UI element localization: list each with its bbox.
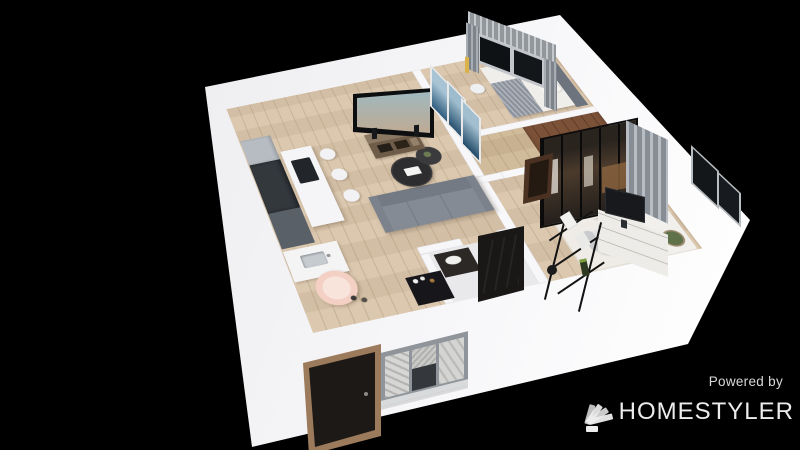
window-pane [439,337,464,384]
tv-stand-leg [372,128,377,140]
monitor-stand [621,219,627,228]
window-pane [385,351,409,398]
wall-shelves [543,203,615,315]
shelf-bottle-green [579,258,589,276]
hanging-clothes [584,155,593,187]
shelf-paper [574,231,591,249]
wall-lamp [465,57,469,74]
powered-by-label: Powered by [709,374,783,389]
tv-stand-leg [414,125,419,137]
render-canvas: Powered by HOMESTYLER [0,0,800,450]
curtain [544,58,557,111]
homestyler-logo-icon [583,392,621,434]
entry-door-handle [364,392,368,396]
shelf-pot [547,265,557,275]
homestyler-brand: HOMESTYLER [619,398,794,426]
